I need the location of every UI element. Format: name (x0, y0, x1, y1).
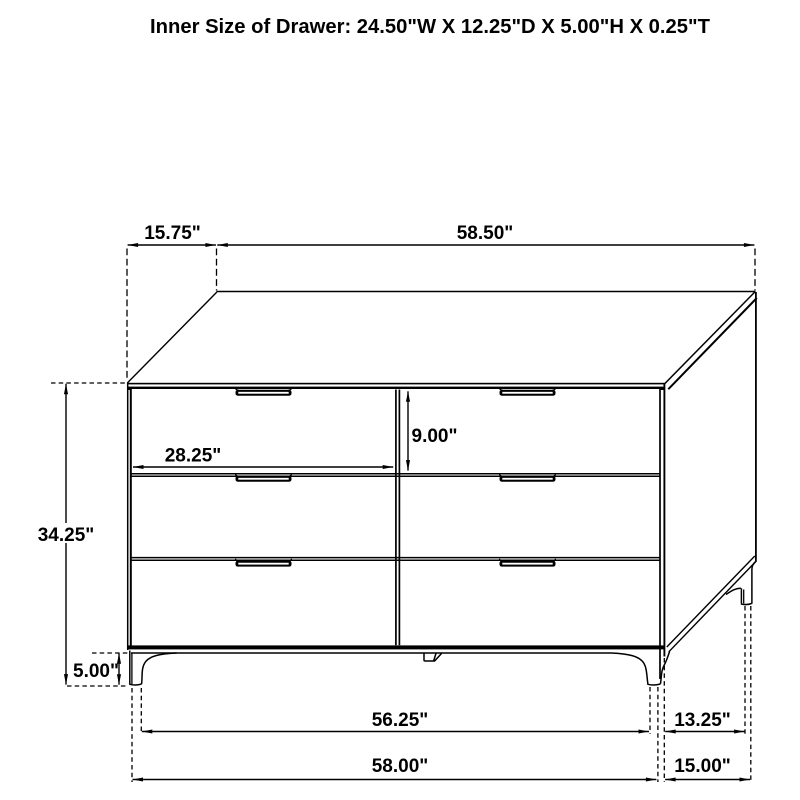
svg-text:13.25": 13.25" (674, 710, 731, 731)
svg-text:9.00": 9.00" (412, 426, 458, 447)
svg-text:28.25": 28.25" (165, 445, 222, 466)
svg-text:Inner Size of Drawer: 24.50"W: Inner Size of Drawer: 24.50"W X 12.25"D … (150, 16, 710, 38)
svg-text:15.75": 15.75" (144, 223, 201, 244)
svg-text:15.00": 15.00" (674, 756, 731, 777)
svg-text:56.25": 56.25" (372, 710, 429, 731)
svg-text:58.00": 58.00" (372, 756, 429, 777)
svg-text:5.00": 5.00" (73, 661, 119, 682)
svg-text:58.50": 58.50" (457, 223, 514, 244)
svg-text:34.25": 34.25" (38, 525, 95, 546)
